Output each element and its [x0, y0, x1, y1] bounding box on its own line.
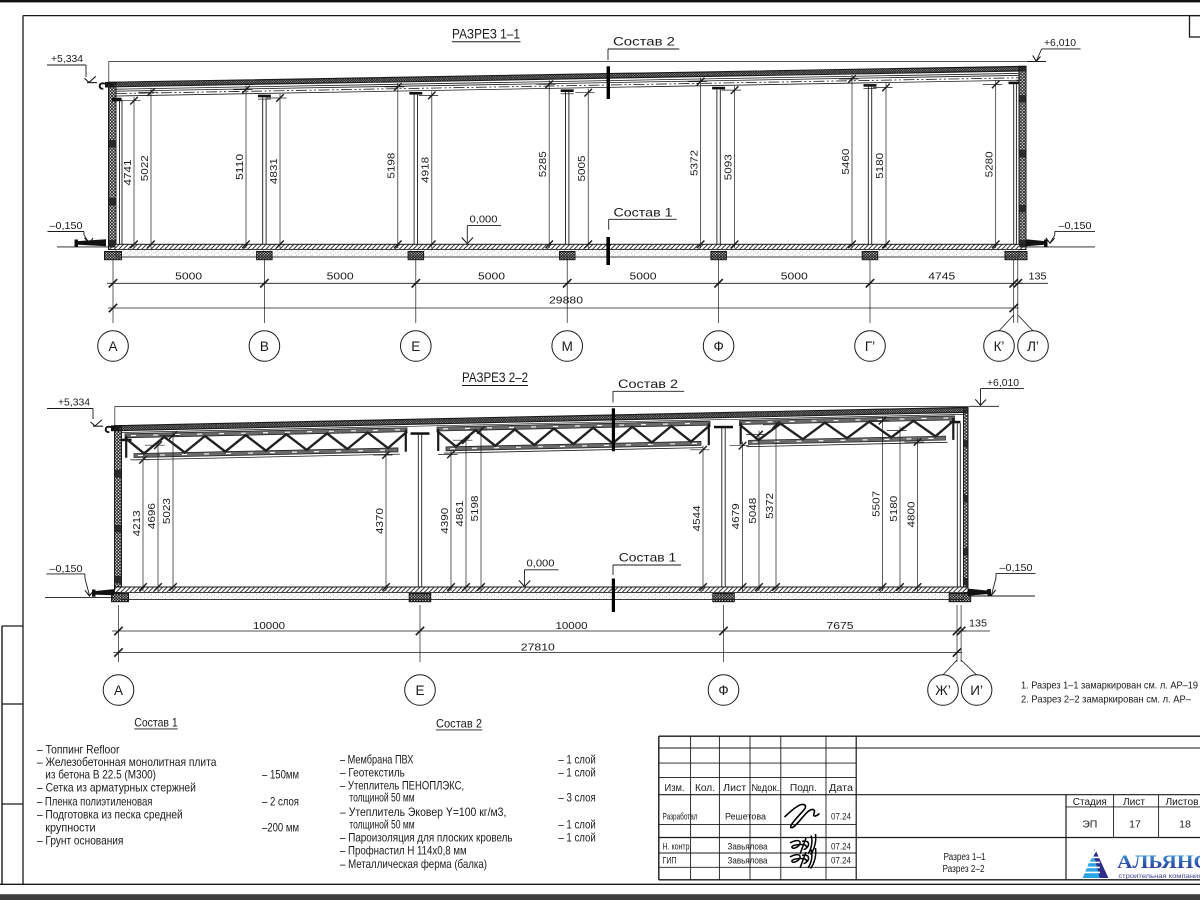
svg-text:Дата: Дата — [829, 783, 853, 794]
svg-text:– 1 слой: – 1 слой — [558, 818, 595, 832]
svg-text:–0,150: –0,150 — [50, 220, 83, 232]
svg-text:ГИП: ГИП — [663, 856, 677, 866]
svg-text:Листов: Листов — [1166, 797, 1199, 808]
svg-text:135: 135 — [969, 619, 987, 630]
svg-text:Решетова: Решетова — [725, 811, 766, 821]
svg-text:+6,010: +6,010 — [987, 377, 1019, 389]
svg-text:5023: 5023 — [162, 498, 173, 525]
svg-text:4370: 4370 — [375, 508, 386, 535]
svg-text:10000: 10000 — [253, 621, 285, 632]
svg-text:А: А — [114, 683, 123, 698]
svg-text:Состав 1: Состав 1 — [134, 715, 178, 729]
svg-text:4696: 4696 — [147, 503, 158, 530]
svg-text:4800: 4800 — [906, 501, 917, 528]
svg-text:7675: 7675 — [827, 621, 855, 632]
svg-text:18: 18 — [1179, 819, 1191, 831]
svg-text:М: М — [562, 339, 573, 354]
svg-text:5460: 5460 — [841, 148, 852, 175]
svg-text:4544: 4544 — [692, 505, 703, 532]
svg-text:толщиной 50 мм: толщиной 50 мм — [349, 791, 414, 805]
svg-text:– Профнастил Н 114х0,8 мм: – Профнастил Н 114х0,8 мм — [340, 844, 467, 858]
svg-text:5048: 5048 — [748, 497, 759, 524]
svg-text:Разработал: Разработал — [663, 812, 698, 822]
svg-text:Е: Е — [415, 683, 424, 698]
svg-text:5000: 5000 — [175, 272, 203, 283]
svg-text:Разрез 1–1: Разрез 1–1 — [944, 852, 986, 863]
svg-text:–0,150: –0,150 — [1059, 220, 1092, 232]
svg-text:17: 17 — [1129, 819, 1141, 831]
svg-text:– Мембрана ПВХ: – Мембрана ПВХ — [340, 753, 413, 767]
svg-text:+6,010: +6,010 — [1044, 37, 1076, 49]
svg-text:–0,150: –0,150 — [50, 563, 83, 575]
svg-text:5022: 5022 — [140, 155, 151, 182]
svg-text:5110: 5110 — [235, 153, 246, 180]
svg-text:5005: 5005 — [577, 155, 588, 182]
svg-text:4679: 4679 — [731, 503, 742, 530]
svg-text:Ф: Ф — [718, 683, 728, 698]
svg-text:27810: 27810 — [521, 643, 556, 654]
svg-text:5507: 5507 — [871, 490, 882, 517]
svg-text:Состав 1: Состав 1 — [619, 551, 677, 565]
svg-text:5000: 5000 — [478, 272, 506, 283]
svg-text:5000: 5000 — [327, 272, 355, 283]
svg-text:из бетона В 22.5 (М300): из бетона В 22.5 (М300) — [45, 768, 156, 782]
svg-text:5198: 5198 — [387, 152, 398, 179]
svg-text:Состав 1: Состав 1 — [614, 205, 673, 219]
svg-text:5180: 5180 — [875, 152, 886, 179]
svg-text:4861: 4861 — [455, 500, 466, 527]
svg-text:– 1 слой: – 1 слой — [558, 766, 595, 780]
svg-text:РАЗРЕЗ 1–1: РАЗРЕЗ 1–1 — [452, 27, 520, 42]
svg-text:– 150мм: – 150мм — [262, 768, 299, 782]
svg-text:5280: 5280 — [985, 151, 996, 178]
svg-text:Н. контр.: Н. контр. — [663, 841, 692, 851]
svg-text:№док.: №док. — [751, 783, 779, 794]
svg-text:07.24: 07.24 — [831, 841, 851, 851]
svg-text:4390: 4390 — [440, 507, 451, 534]
svg-text:+5,334: +5,334 — [51, 53, 83, 65]
svg-text:– Грунт основания: – Грунт основания — [37, 833, 123, 847]
svg-text:Лист: Лист — [723, 783, 746, 794]
svg-text:2. Разрез 2–2 замаркирован см.: 2. Разрез 2–2 замаркирован см. л. АР– — [1021, 694, 1191, 706]
svg-text:4213: 4213 — [132, 510, 143, 537]
svg-text:Состав 2: Состав 2 — [618, 377, 678, 391]
svg-text:0,000: 0,000 — [470, 214, 498, 226]
svg-text:5198: 5198 — [470, 495, 481, 522]
svg-text:5000: 5000 — [781, 272, 809, 283]
svg-text:– Металлическая ферма (балка): – Металлическая ферма (балка) — [340, 857, 487, 871]
svg-text:В: В — [260, 339, 269, 354]
svg-text:4831: 4831 — [269, 158, 280, 185]
svg-text:Подп.: Подп. — [790, 783, 817, 794]
svg-text:5372: 5372 — [765, 492, 776, 519]
svg-text:Стадия: Стадия — [1073, 797, 1107, 808]
svg-text:– Сетка из арматурных стержней: – Сетка из арматурных стержней — [37, 781, 196, 795]
svg-text:Е: Е — [411, 339, 420, 354]
svg-text:И’: И’ — [970, 683, 983, 698]
svg-text:4741: 4741 — [123, 159, 134, 186]
svg-text:–0,150: –0,150 — [1000, 562, 1033, 574]
svg-text:строительная компания: строительная компания — [1118, 873, 1200, 880]
svg-text:29880: 29880 — [549, 296, 584, 307]
svg-text:4745: 4745 — [928, 272, 956, 283]
svg-text:толщиной 50 мм: толщиной 50 мм — [349, 818, 414, 832]
svg-text:– Пароизоляция для плоских кро: – Пароизоляция для плоских кровель — [340, 831, 513, 845]
svg-text:Завьялова: Завьялова — [728, 841, 768, 851]
svg-text:ЭП: ЭП — [1082, 819, 1097, 831]
svg-text:РАЗРЕЗ 2–2: РАЗРЕЗ 2–2 — [462, 370, 528, 385]
svg-text:К’: К’ — [994, 339, 1005, 354]
svg-text:– 1 слой: – 1 слой — [558, 831, 595, 845]
svg-text:АЛЬЯНС: АЛЬЯНС — [1117, 852, 1200, 873]
svg-text:Г’: Г’ — [865, 339, 875, 354]
svg-text:Состав 2: Состав 2 — [613, 35, 675, 49]
svg-text:– Подготовка из песка средней: – Подготовка из песка средней — [37, 807, 183, 821]
svg-text:10000: 10000 — [556, 621, 588, 632]
svg-text:07.24: 07.24 — [831, 811, 851, 821]
svg-text:– Геотекстиль: – Геотекстиль — [340, 766, 405, 780]
svg-text:Лист: Лист — [1123, 797, 1145, 808]
svg-text:0,000: 0,000 — [527, 558, 555, 570]
svg-text:Разрез 2–2: Разрез 2–2 — [943, 864, 985, 875]
svg-text:Кол.: Кол. — [695, 783, 715, 794]
svg-text:135: 135 — [1029, 271, 1047, 282]
svg-text:Л’: Л’ — [1027, 339, 1039, 354]
svg-text:Завьялова: Завьялова — [728, 856, 768, 866]
svg-text:–200 мм: –200 мм — [262, 821, 299, 835]
svg-text:А: А — [108, 339, 117, 354]
svg-text:4918: 4918 — [421, 156, 432, 183]
svg-text:1. Разрез 1–1 замаркирован см.: 1. Разрез 1–1 замаркирован см. л. АР–19 — [1021, 680, 1198, 692]
svg-text:Изм.: Изм. — [665, 783, 685, 794]
svg-text:+5,334: +5,334 — [58, 397, 90, 409]
svg-text:5180: 5180 — [889, 495, 900, 522]
svg-text:Ф: Ф — [713, 339, 723, 354]
svg-text:5285: 5285 — [538, 151, 549, 178]
svg-text:Ж’: Ж’ — [935, 683, 950, 698]
svg-text:07.24: 07.24 — [831, 856, 851, 866]
svg-text:– 2 слоя: – 2 слоя — [262, 795, 299, 809]
svg-text:– 3 слоя: – 3 слоя — [558, 791, 595, 805]
svg-text:5372: 5372 — [689, 149, 700, 176]
svg-text:5093: 5093 — [723, 154, 734, 181]
svg-text:Состав 2: Состав 2 — [436, 716, 482, 730]
svg-text:– 1 слой: – 1 слой — [558, 753, 595, 767]
svg-text:5000: 5000 — [630, 272, 658, 283]
